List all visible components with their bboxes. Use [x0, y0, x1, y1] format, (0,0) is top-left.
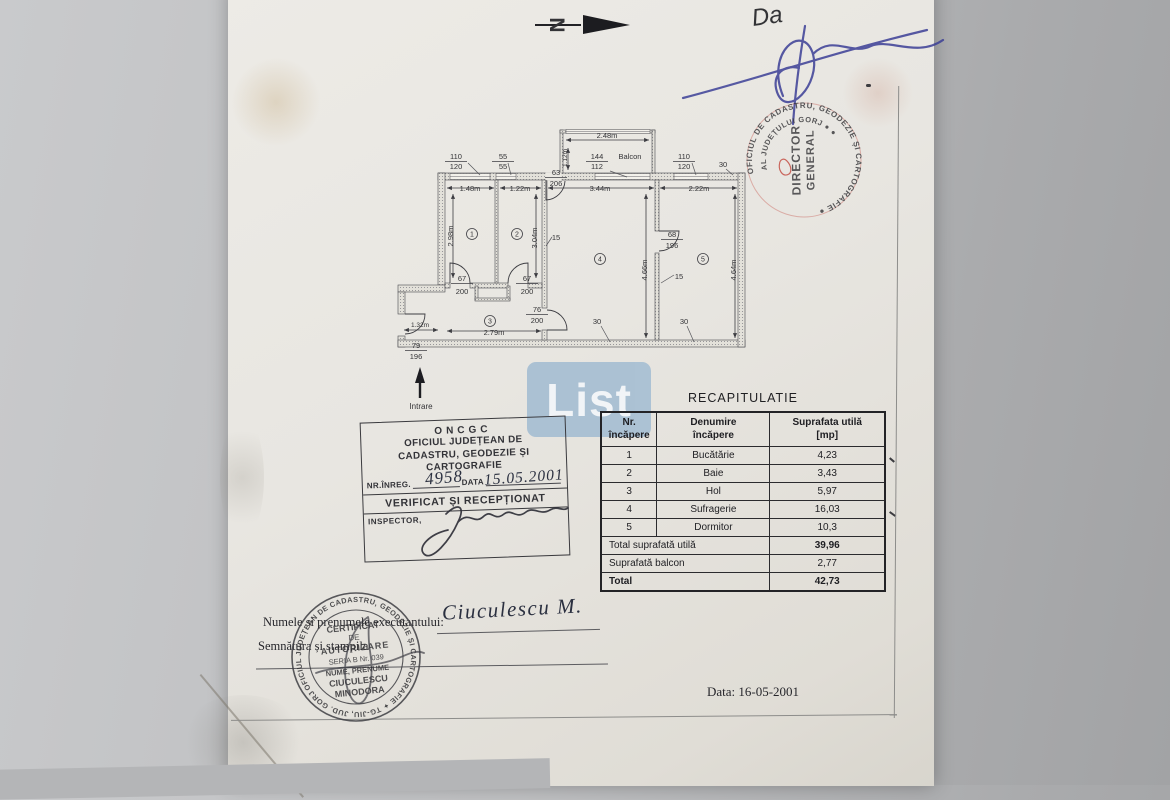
- recap-cell: 1: [601, 447, 657, 465]
- north-arrow: N: [533, 3, 648, 51]
- recap-cell: 5: [601, 519, 657, 537]
- plan-label: Balcon: [619, 152, 642, 161]
- plan-label: 2.98m: [446, 226, 455, 247]
- recap-cell: 10,3: [770, 519, 885, 537]
- plan-label: 55: [499, 162, 507, 171]
- recap-title: RECAPITULATIE: [598, 391, 888, 405]
- recap-row: 2Baie3,43: [601, 465, 885, 483]
- plan-label: 3.44m: [590, 184, 611, 193]
- recap-header-suprafata: Suprafata utilă[mp]: [770, 412, 885, 447]
- plan-label: 67: [458, 274, 466, 283]
- plan-label: 68: [668, 230, 676, 239]
- recap-row: 1Bucătărie4,23: [601, 447, 885, 465]
- plan-label: 2.48m: [597, 131, 618, 140]
- stamp-ring: [734, 90, 874, 230]
- recap-row: 4Sufragerie16,03: [601, 501, 885, 519]
- plan-label: 3.04m: [530, 228, 539, 249]
- plan-label: 67: [523, 274, 531, 283]
- plan-label: 206: [550, 179, 563, 188]
- reg-number-label: NR.ÎNREG.: [367, 480, 411, 491]
- red-stamp-center-line2: GENERAL: [804, 129, 817, 190]
- document-date: Data: 16-05-2001: [707, 684, 799, 700]
- recap-cell: Bucătărie: [657, 447, 770, 465]
- plan-label: 15: [675, 272, 683, 281]
- summary-label: Total: [601, 573, 770, 592]
- summary-value: 2,77: [770, 555, 885, 573]
- plan-label: 30: [680, 317, 688, 326]
- recap-summary-row: Total42,73: [601, 573, 885, 592]
- plan-label: 196: [666, 241, 679, 250]
- plan-label: 1.48m: [460, 184, 481, 193]
- plan-label: 196: [410, 352, 423, 361]
- plan-label: 1.12m: [562, 149, 569, 167]
- plan-label: 112: [591, 162, 603, 171]
- recap-cell: 2: [601, 465, 657, 483]
- plan-label: 200: [531, 316, 544, 325]
- plan-label: 110: [678, 152, 690, 161]
- scanned-cadastral-document: { "north": { "letter": "N" }, "ink_note"…: [0, 0, 1170, 785]
- summary-value: 42,73: [770, 573, 885, 592]
- recap-cell: 4,23: [770, 447, 885, 465]
- plan-label: 144: [591, 152, 604, 161]
- north-arrow-head: [583, 15, 630, 34]
- certificate-round-stamp: OFICIUL JUDEȚEAN DE CADASTRU, GEODEZIE Ș…: [272, 573, 440, 741]
- recap-table: Nr.încăpere Denumireîncăpere Suprafata u…: [600, 411, 886, 592]
- photo-edge-shadow: [0, 758, 550, 800]
- plan-label: 76: [533, 305, 541, 314]
- entrance-arrow: [415, 367, 425, 398]
- plan-label: 1.32m: [411, 322, 429, 329]
- room-number: 4: [598, 257, 602, 264]
- room-number: 2: [515, 232, 519, 239]
- plan-label: 120: [678, 162, 691, 171]
- plan-label: 1.22m: [510, 184, 531, 193]
- summary-label: Total suprafată utilă: [601, 537, 770, 555]
- recap-cell: 16,03: [770, 501, 885, 519]
- plan-label: 2.79m: [484, 328, 505, 337]
- recap-cell: Sufragerie: [657, 501, 770, 519]
- recap-header-nr: Nr.încăpere: [601, 412, 657, 447]
- svg-text:OFICIUL DE CADASTRU, GEODEZIE: OFICIUL DE CADASTRU, GEODEZIE ȘI CARTOGR…: [732, 88, 877, 233]
- red-stamp-center-line1: DIRECTOR: [788, 125, 803, 196]
- recap-summary-row: Suprafată balcon2,77: [601, 555, 885, 573]
- recap-cell: 3,43: [770, 465, 885, 483]
- plan-label: 79: [412, 341, 420, 350]
- ink-note-text: Da: [750, 1, 784, 32]
- plan-label: 63: [552, 168, 560, 177]
- plan-label: Intrare: [409, 402, 433, 411]
- recap-cell: Baie: [657, 465, 770, 483]
- recap-header-row: Nr.încăpere Denumireîncăpere Suprafata u…: [601, 412, 885, 447]
- room-number: 1: [470, 232, 474, 239]
- recap-cell: 3: [601, 483, 657, 501]
- red-stamp-outer-text: OFICIUL DE CADASTRU, GEODEZIE ȘI CARTOGR…: [732, 88, 877, 233]
- plan-label: 2.22m: [689, 184, 710, 193]
- recap-summary-row: Total suprafată utilă39,96: [601, 537, 885, 555]
- inspector-signature: [412, 500, 572, 566]
- recap-cell: Hol: [657, 483, 770, 501]
- plan-label: 4.66m: [640, 260, 649, 281]
- summary-value: 39,96: [770, 537, 885, 555]
- recap-cell: Dormitor: [657, 519, 770, 537]
- summary-label: Suprafată balcon: [601, 555, 770, 573]
- plan-label: 120: [450, 162, 463, 171]
- recap-header-denumire: Denumireîncăpere: [657, 412, 770, 447]
- plan-label: 200: [456, 287, 469, 296]
- plan-label: 30: [719, 160, 727, 169]
- plan-label: 110: [450, 152, 462, 161]
- plan-label: 200: [521, 287, 534, 296]
- room-number: 5: [701, 257, 705, 264]
- room-number: 3: [488, 319, 492, 326]
- north-letter: N: [545, 17, 568, 32]
- plan-label: 55: [499, 152, 507, 161]
- recap-row: 3Hol5,97: [601, 483, 885, 501]
- recap-cell: 4: [601, 501, 657, 519]
- reg-number-handwritten: 4958: [424, 466, 464, 489]
- recap-cell: 5,97: [770, 483, 885, 501]
- plan-label: 30: [593, 317, 601, 326]
- recap-row: 5Dormitor10,3: [601, 519, 885, 537]
- plan-label: 15: [552, 233, 560, 242]
- reg-date-label: DATA: [461, 478, 484, 488]
- plan-label: 4.64m: [729, 260, 738, 281]
